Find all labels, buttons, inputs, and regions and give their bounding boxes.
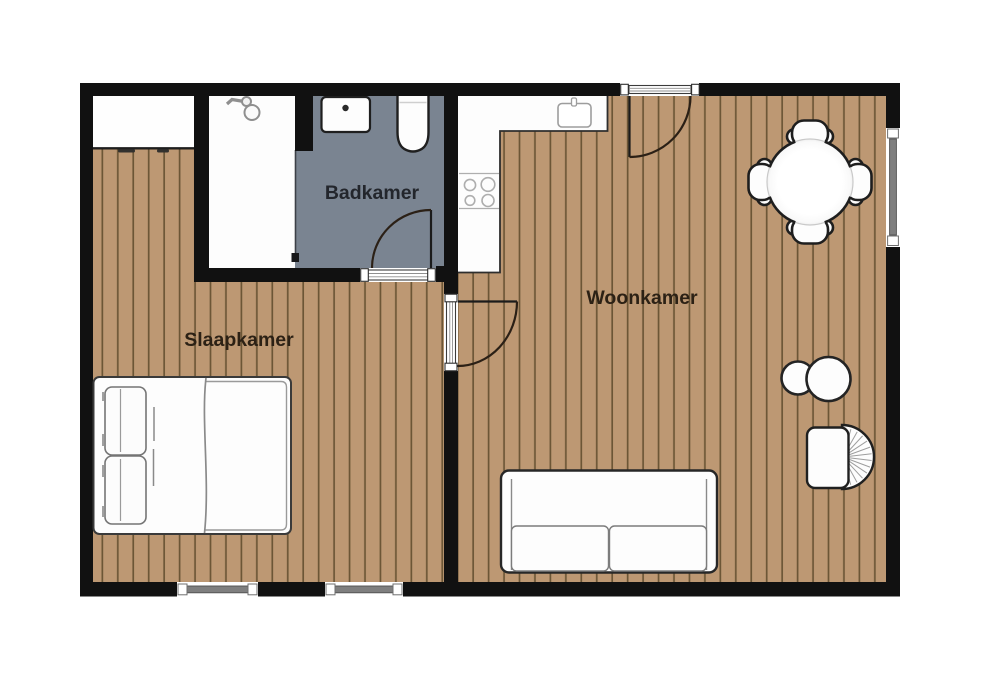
svg-text:Slaapkamer: Slaapkamer (184, 329, 294, 351)
svg-text:Woonkamer: Woonkamer (586, 287, 698, 309)
svg-text:Badkamer: Badkamer (325, 182, 420, 204)
